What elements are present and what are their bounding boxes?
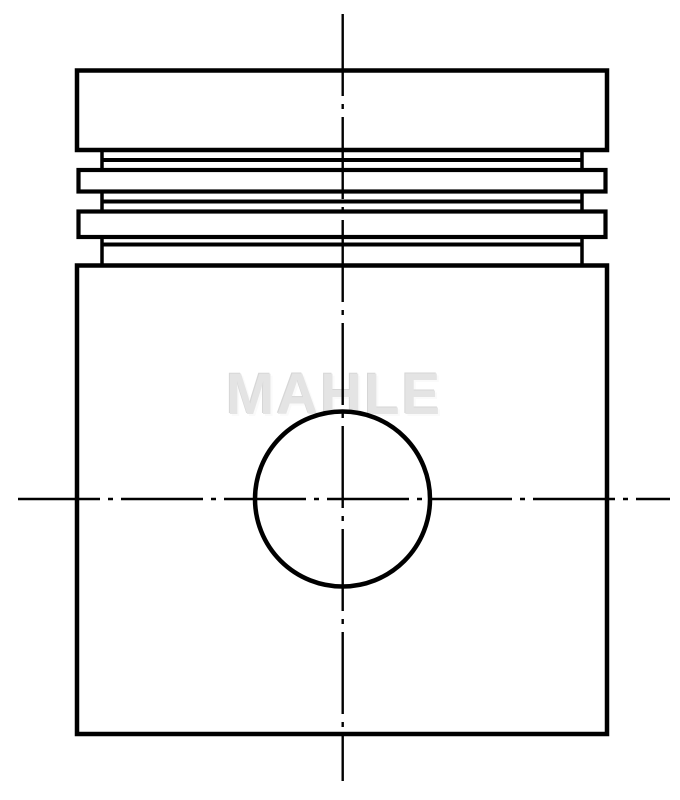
technical-drawing-canvas: MAHLE [0, 0, 680, 800]
piston-front-view-drawing [0, 0, 680, 800]
